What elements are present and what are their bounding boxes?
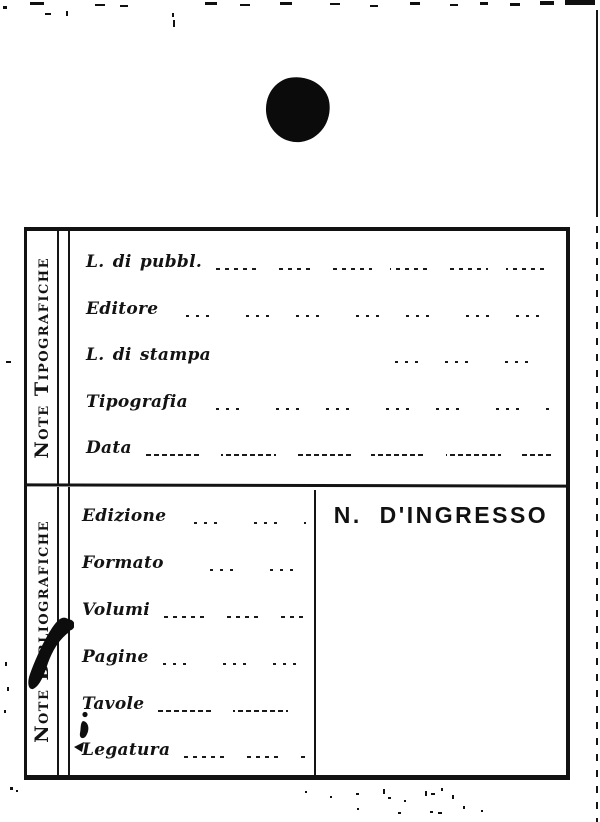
field-label: L. di stampa [86, 345, 211, 365]
scan-speck [480, 2, 488, 5]
field-label: L. di pubbl. [86, 252, 202, 272]
field-label: Edizione [82, 506, 166, 526]
scan-speck [510, 3, 520, 6]
field-row-data: Data [86, 425, 558, 472]
scan-speck [452, 795, 454, 799]
field-row-pagine: Pagine [82, 633, 310, 680]
dotted-fill-line [186, 315, 554, 317]
field-row-tipografia: Tipografia [86, 379, 558, 426]
bibliografiche-fields: Edizione Formato Volumi Pagine Tavole Le… [70, 487, 314, 775]
scan-speck [410, 2, 420, 5]
catalog-card: Note Tipografiche L. di pubbl. Editore L… [24, 227, 570, 780]
tipografiche-fields: L. di pubbl. Editore L. di stampa Tipogr… [70, 231, 566, 484]
scan-speck [441, 788, 443, 791]
scan-speck [66, 11, 68, 16]
dotted-fill-line [194, 522, 306, 524]
field-label: Formato [82, 553, 164, 573]
field-row-tavole: Tavole [82, 680, 310, 727]
dotted-fill-line [158, 710, 306, 712]
field-label: Pagine [82, 647, 149, 667]
scan-speck [10, 787, 13, 790]
scan-speck [45, 13, 51, 15]
section-note-tipografiche: Note Tipografiche L. di pubbl. Editore L… [27, 231, 566, 484]
scan-speck [383, 789, 385, 794]
ink-squiggle [74, 711, 94, 755]
scan-speck [565, 0, 595, 5]
scan-speck [172, 13, 174, 17]
scan-speck [330, 3, 340, 5]
field-row-l-di-stampa: L. di stampa [86, 332, 558, 379]
dotted-fill-line [146, 454, 554, 456]
scan-speck [540, 1, 554, 5]
scan-speck [205, 2, 217, 5]
section-label-rail: Note Tipografiche [27, 231, 57, 484]
dotted-fill-line [184, 756, 306, 758]
scan-speck [173, 20, 175, 27]
scan-speck [398, 812, 401, 814]
field-row-volumi: Volumi [82, 587, 310, 634]
dotted-fill-line [163, 663, 306, 665]
field-row-legatura: Legatura [82, 727, 310, 774]
field-row-edizione: Edizione [82, 493, 310, 540]
scan-speck [6, 361, 11, 363]
dotted-fill-line [225, 361, 554, 363]
page-edge-dashed-line [596, 210, 598, 822]
field-label: Volumi [82, 600, 150, 620]
scan-speck [438, 812, 442, 814]
scan-speck [357, 808, 359, 810]
ink-blot [262, 73, 334, 146]
scan-speck [305, 791, 307, 793]
dotted-fill-line [164, 616, 306, 618]
field-row-formato: Formato [82, 540, 310, 587]
double-rule [57, 231, 70, 484]
scan-speck [16, 790, 18, 792]
scan-speck [481, 810, 483, 812]
field-label: Editore [86, 299, 158, 319]
field-label: Tipografia [86, 392, 188, 412]
scanned-catalog-card-page: { "card": { "sections": [ { "id": "tipog… [0, 0, 600, 822]
scan-speck [330, 796, 332, 798]
field-row-l-di-pubbl: L. di pubbl. [86, 239, 558, 286]
section-note-bibliografiche: Note Bibliografiche Edizione Formato Vol… [27, 487, 566, 775]
scan-speck [4, 710, 6, 713]
scan-speck [430, 811, 433, 813]
dotted-fill-line [210, 569, 306, 571]
field-label: Data [86, 438, 132, 458]
field-row-editore: Editore [86, 286, 558, 333]
field-label: Legatura [82, 740, 170, 760]
scan-speck [370, 5, 378, 7]
scan-speck [404, 800, 406, 802]
scan-speck [280, 2, 292, 5]
scan-speck [450, 4, 458, 6]
scan-speck [240, 4, 250, 6]
dotted-fill-line [216, 408, 554, 410]
scan-speck [431, 793, 435, 795]
scan-speck [30, 2, 44, 5]
ingresso-title: N. D'INGRESSO [316, 502, 566, 529]
ink-smudge [28, 616, 74, 700]
scan-speck [388, 797, 391, 799]
dotted-fill-line [216, 268, 554, 270]
ingresso-box: N. D'INGRESSO [316, 487, 566, 775]
scan-speck [425, 791, 427, 796]
section-label-tipografiche: Note Tipografiche [31, 257, 53, 459]
scan-speck [356, 793, 359, 795]
scan-speck [95, 4, 105, 6]
scan-speck [463, 806, 465, 809]
scan-speck [5, 662, 7, 666]
page-edge-line [596, 10, 598, 210]
scan-speck [7, 687, 9, 691]
scan-speck [120, 5, 128, 7]
scan-speck [3, 6, 7, 9]
